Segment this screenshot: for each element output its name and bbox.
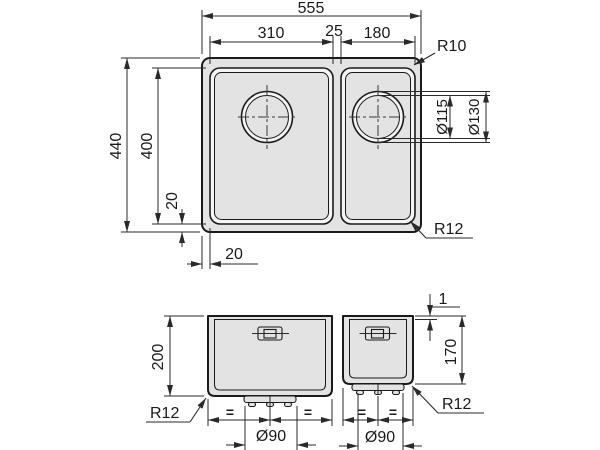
- left-drain-clip: [249, 403, 256, 407]
- dim-text-bowl2-width: 180: [364, 25, 391, 42]
- dim-text-gap: 25: [325, 23, 343, 40]
- label-corner-radius-bowl: R12: [434, 221, 463, 238]
- technical-drawing-page: 555 310 25 180 R10 Ø115 Ø130 R12 440: [0, 0, 600, 450]
- equal-symbol: =: [389, 404, 397, 420]
- equal-symbol: =: [304, 404, 312, 420]
- left-bowl-front-interior: [215, 320, 326, 391]
- equal-symbol: =: [358, 404, 366, 420]
- front-view: 200 R12 1 170 R12 = = Ø90: [146, 291, 484, 450]
- right-drain-clip: [393, 391, 400, 395]
- label-radius-bowl1: R12: [150, 405, 179, 422]
- equal-symbol: =: [226, 404, 234, 420]
- left-drain-clip: [285, 403, 292, 407]
- top-view: 555 310 25 180 R10 Ø115 Ø130 R12 440: [108, 0, 490, 269]
- dim-text-drain-inner-dia: Ø115: [434, 99, 451, 135]
- dim-text-bowl-depth: 400: [139, 133, 156, 160]
- sink-technical-drawing: 555 310 25 180 R10 Ø115 Ø130 R12 440: [0, 0, 600, 450]
- dim-text-overall-depth: 440: [108, 133, 125, 160]
- dim-text-drain1-dia: Ø90: [256, 428, 286, 445]
- dim-text-bowl1-height: 200: [150, 344, 167, 371]
- leader-line-r12-left: [190, 398, 206, 422]
- dim-text-bottom-offset: 20: [164, 192, 181, 210]
- dim-text-bowl1-width: 310: [258, 25, 285, 42]
- right-bowl-front-interior: [350, 320, 407, 379]
- label-radius-bowl2: R12: [442, 396, 471, 413]
- dim-text-drain2-dia: Ø90: [365, 429, 395, 446]
- dim-text-drain-outer-dia: Ø130: [466, 99, 483, 136]
- dim-text-bowl2-height: 170: [443, 339, 460, 366]
- label-corner-radius-outer: R10: [437, 38, 466, 55]
- dim-text-overall-width: 555: [298, 0, 325, 17]
- leader-line-r12-right: [412, 386, 438, 413]
- dim-text-left-offset: 20: [225, 246, 243, 263]
- dim-text-rim-thickness: 1: [439, 291, 448, 308]
